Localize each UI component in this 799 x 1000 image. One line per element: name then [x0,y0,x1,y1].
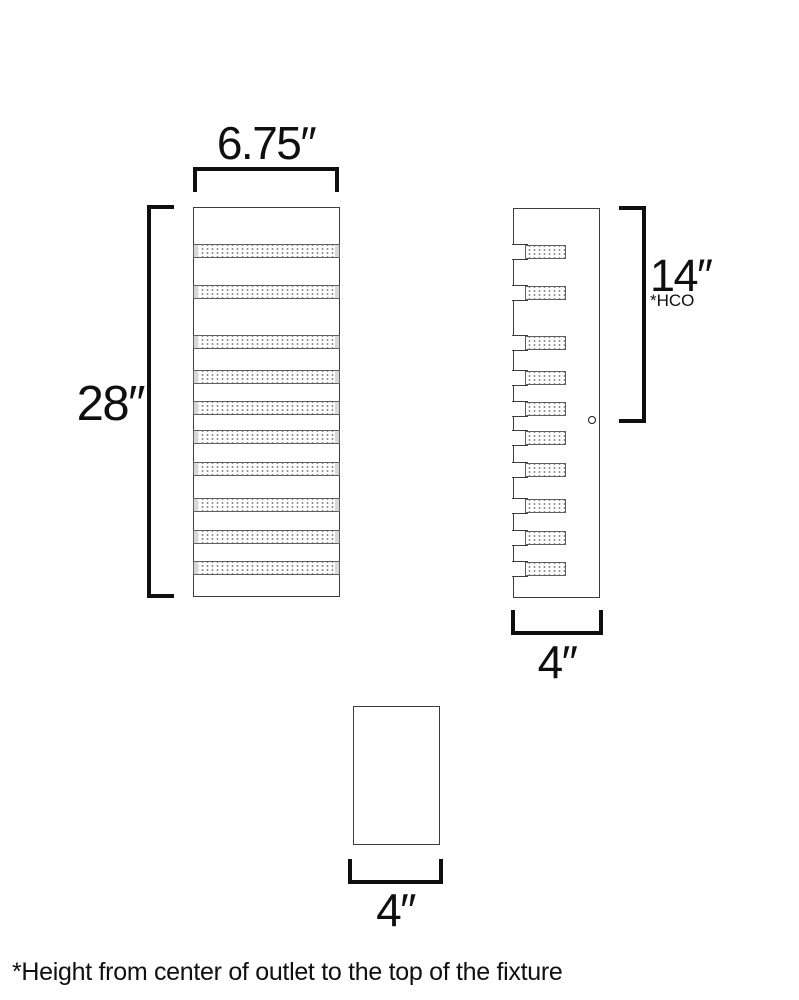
front-glass-slat [193,244,340,258]
bottom-width-dimension-label: 4″ [348,883,443,937]
front-glass-slat [193,430,340,444]
side-glass-slat [525,562,566,576]
side-glass-slat [525,245,566,259]
height-dimension-bracket [147,205,174,598]
bottom-width-dimension-bracket [348,859,443,884]
front-glass-slat [193,462,340,476]
mounting-hole [588,416,596,424]
dimension-diagram: 6.75″ 28″ 14″ *HCO 4″ 4″ *Height from ce… [0,0,799,1000]
side-glass-slat [525,499,566,513]
hco-footnote: *Height from center of outlet to the top… [12,958,562,987]
side-glass-slat [525,286,566,300]
hco-dimension-sublabel: *HCO [650,291,694,311]
side-glass-slat [525,431,566,445]
side-glass-slat [525,531,566,545]
front-glass-slat [193,285,340,299]
front-view [193,207,340,597]
front-glass-slat [193,370,340,384]
side-width-dimension-label: 4″ [511,635,603,689]
side-glass-slat [525,371,566,385]
height-dimension-label: 28″ [0,376,144,432]
side-glass-slat [525,402,566,416]
side-width-dimension-bracket [511,610,603,635]
bottom-view [353,706,440,845]
front-glass-slat [193,530,340,544]
width-dimension-label: 6.75″ [193,116,339,170]
hco-dimension-bracket [619,206,646,423]
front-glass-slat [193,498,340,512]
front-glass-slat [193,401,340,415]
side-glass-slat [525,463,566,477]
front-glass-slat [193,561,340,575]
front-glass-slat [193,335,340,349]
width-dimension-bracket [193,167,339,192]
side-glass-slat [525,336,566,350]
side-view [513,208,600,598]
